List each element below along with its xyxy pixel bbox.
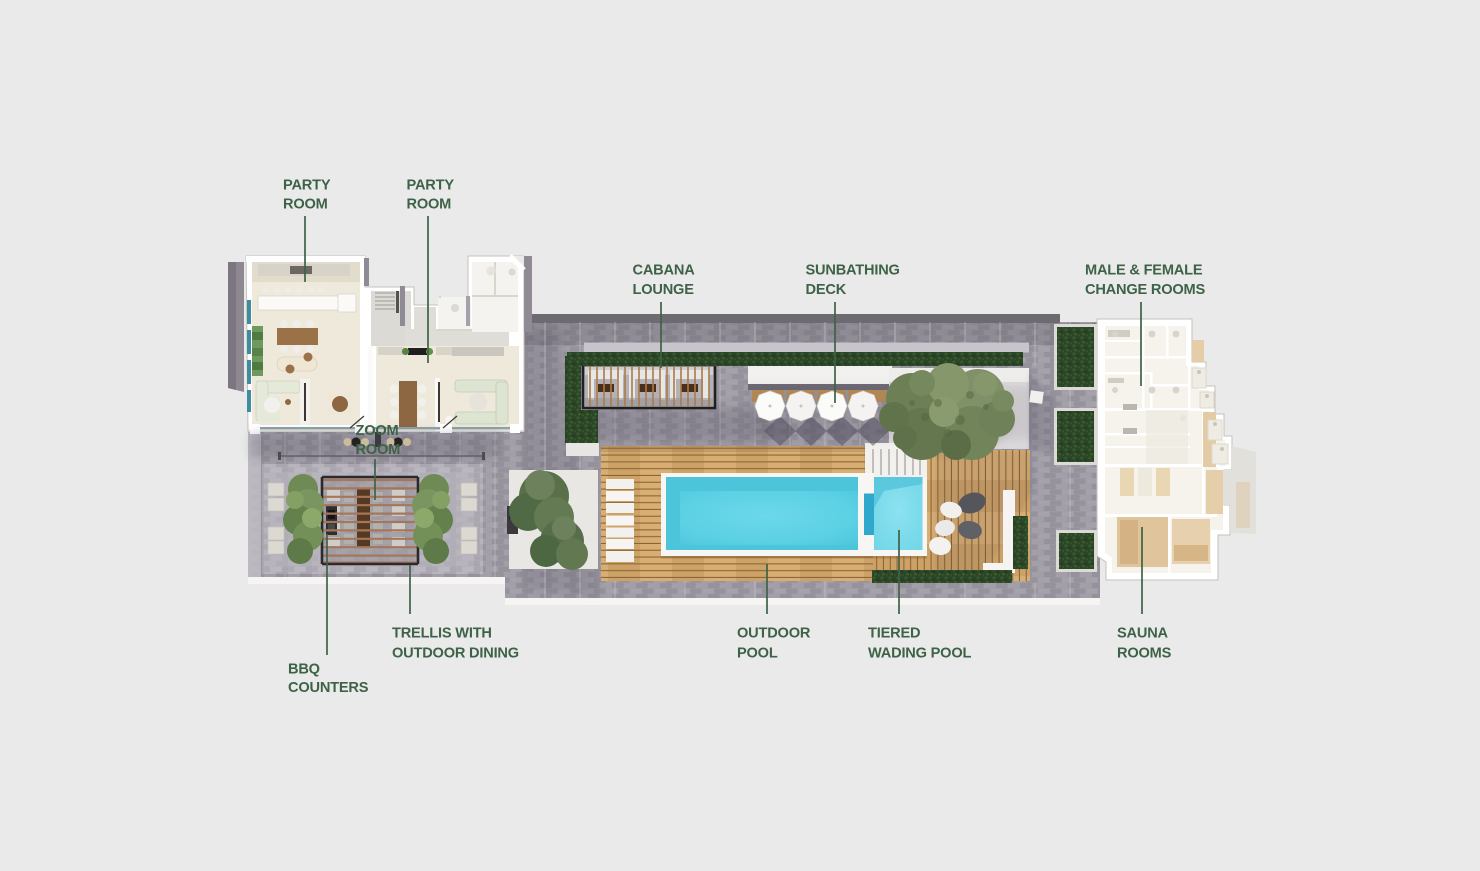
svg-text:TIERED: TIERED: [868, 625, 920, 641]
svg-text:DECK: DECK: [806, 282, 847, 298]
svg-text:ROOM: ROOM: [407, 197, 452, 213]
svg-text:ZOOM: ZOOM: [356, 423, 399, 439]
svg-text:COUNTERS: COUNTERS: [288, 680, 369, 696]
svg-text:CHANGE ROOMS: CHANGE ROOMS: [1085, 282, 1205, 298]
svg-text:WADING POOL: WADING POOL: [868, 645, 971, 661]
svg-text:ROOM: ROOM: [356, 442, 401, 458]
svg-text:OUTDOOR: OUTDOOR: [737, 625, 811, 641]
svg-text:ROOMS: ROOMS: [1117, 645, 1172, 661]
svg-text:OUTDOOR DINING: OUTDOOR DINING: [392, 645, 519, 661]
svg-text:SUNBATHING: SUNBATHING: [806, 262, 900, 278]
svg-text:BBQ: BBQ: [288, 661, 320, 677]
svg-text:PARTY: PARTY: [407, 178, 455, 194]
svg-text:CABANA: CABANA: [633, 262, 696, 278]
svg-text:MALE & FEMALE: MALE & FEMALE: [1085, 262, 1203, 278]
svg-text:PARTY: PARTY: [283, 178, 331, 194]
svg-text:POOL: POOL: [737, 645, 778, 661]
svg-text:ROOM: ROOM: [283, 197, 328, 213]
svg-text:SAUNA: SAUNA: [1117, 625, 1169, 641]
svg-text:LOUNGE: LOUNGE: [633, 282, 695, 298]
svg-text:TRELLIS WITH: TRELLIS WITH: [392, 625, 492, 641]
